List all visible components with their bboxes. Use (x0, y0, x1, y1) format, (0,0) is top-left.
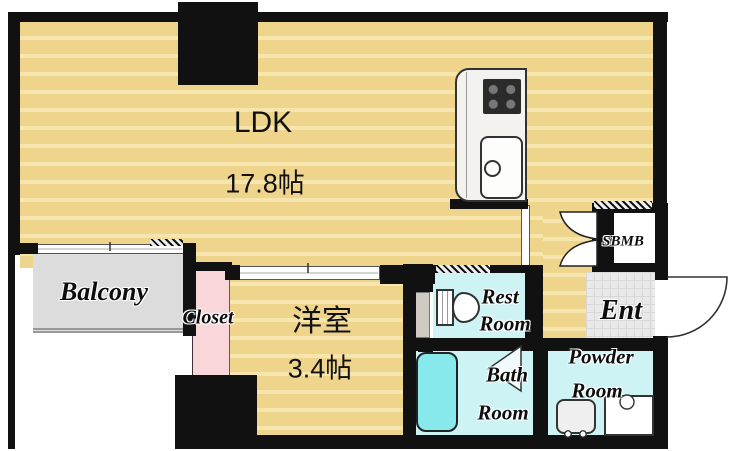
powder-room-label-line1: Powder (568, 345, 633, 370)
wall-corner-balcony-left (18, 243, 38, 254)
rest-room-door (415, 292, 430, 338)
wall-top (8, 12, 668, 22)
washbasin-icon (556, 399, 596, 434)
wall-right-upper (653, 12, 667, 213)
floorplan-canvas: LDK 17.8帖 洋室 3.4帖 Balcony Closet Rest Ro… (0, 0, 731, 451)
bath-room-label-line2: Room (477, 401, 528, 426)
kitchen-faucet-icon (484, 160, 501, 177)
western-room-label: 洋室 (292, 296, 352, 340)
wall-western-right (403, 264, 433, 292)
wall-ent-right-stub (655, 272, 668, 280)
bathtub-icon (416, 352, 458, 432)
western-room-area-label: 3.4帖 (288, 347, 353, 386)
wall-western-bath-left (403, 292, 416, 448)
wall-right-lower (653, 336, 668, 449)
entrance-label: Ent (600, 295, 642, 327)
closet-label: Closet (182, 307, 233, 330)
rest-room-label-line1: Rest (481, 285, 518, 310)
ldk-area-label: 17.8帖 (225, 162, 305, 201)
pillar-top (178, 2, 258, 85)
wall-bath-powder-divider (533, 338, 548, 449)
balcony-label: Balcony (60, 277, 148, 307)
hatch-opening-rest (436, 265, 490, 273)
pillar-bottom (175, 375, 257, 449)
wall-left-upper (8, 12, 20, 255)
powder-room-label-line2: Room (571, 379, 622, 404)
kitchen-stove-icon (483, 79, 521, 114)
kitchen-counter-edge (466, 72, 467, 198)
wall-left-lower (8, 255, 15, 449)
wall-stub-sliding-left (225, 265, 240, 280)
shoe-box-label: SBMB (602, 234, 644, 251)
bath-room-label-line1: Bath (486, 363, 528, 388)
hatch-opening-sbmb (594, 201, 652, 209)
ldk-door-panel (521, 205, 530, 266)
rest-room-label-line2: Room (479, 312, 530, 337)
ldk-label: LDK (234, 106, 292, 140)
hatch-opening-balcony (150, 239, 183, 246)
sliding-door-ldk-western (238, 266, 380, 280)
entrance-door-icon (667, 277, 727, 337)
